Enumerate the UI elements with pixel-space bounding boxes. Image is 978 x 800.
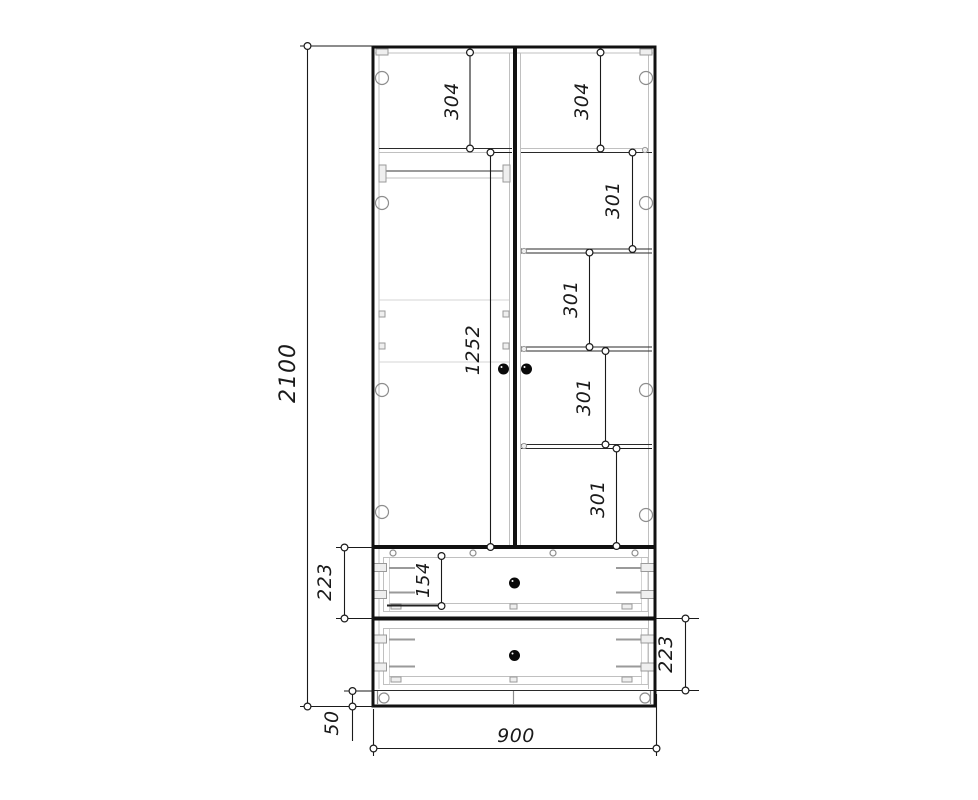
dim-label-301-1: 301 (602, 181, 624, 219)
cam-lock-icon (376, 72, 389, 85)
foot-icon (640, 693, 650, 703)
cam-lock-icon (376, 506, 389, 519)
cam-lock-icon (632, 550, 638, 556)
dim-label-1252: 1252 (462, 325, 484, 375)
cam-lock-icon (470, 550, 476, 556)
cam-lock-icon (640, 72, 653, 85)
left-door-handle (498, 364, 509, 375)
bottom-fitting (391, 677, 401, 682)
dim-total-height: 2100 (276, 43, 373, 710)
dim-label-301-3: 301 (573, 378, 595, 416)
dim-right-shelf-1: 301 (602, 149, 636, 252)
shelf-pin (503, 311, 509, 317)
handle-highlight (501, 366, 503, 368)
foot-icon (379, 693, 389, 703)
bottom-fitting (622, 677, 632, 682)
slide-bracket (374, 635, 387, 643)
knob-highlight (512, 653, 514, 655)
drawing-canvas: 2100 304 304 1252 301 (0, 0, 978, 800)
rod-end-bracket (379, 165, 386, 182)
dim-plinth: 50 (321, 688, 374, 741)
dim-label-223-upper: 223 (314, 563, 336, 601)
cam-lock-icon (640, 384, 653, 397)
dim-drawer-box: 154 (387, 553, 445, 610)
rod-end-bracket (503, 165, 510, 182)
knob-highlight (512, 580, 514, 582)
dim-right-top-section: 304 (571, 49, 604, 152)
cam-lock-icon (376, 384, 389, 397)
wardrobe-technical-drawing: 2100 304 304 1252 301 (0, 0, 978, 800)
dim-label-2100: 2100 (276, 343, 301, 403)
handle-highlight (524, 366, 526, 368)
dim-right-shelf-3: 301 (573, 348, 609, 448)
dim-label-900: 900 (497, 725, 535, 747)
dim-label-304-right: 304 (571, 82, 593, 120)
cam-lock-icon (640, 509, 653, 522)
bottom-fitting (510, 677, 517, 682)
dim-label-304-left: 304 (441, 82, 463, 120)
dim-right-shelf-4: 301 (587, 445, 652, 549)
dim-right-shelf-2: 301 (560, 249, 593, 350)
dim-lower-drawer: 223 (655, 615, 699, 694)
shelf-pin (379, 343, 385, 349)
cam-lock-icon (376, 197, 389, 210)
shelf-clip (521, 443, 526, 448)
dimensions: 2100 304 304 1252 301 (276, 43, 699, 756)
dim-upper-drawer: 223 (314, 544, 373, 622)
dim-label-301-2: 301 (560, 280, 582, 318)
slide-bracket (374, 663, 387, 671)
right-door-handle (521, 364, 532, 375)
dim-label-50: 50 (321, 710, 343, 735)
shelf-pin (503, 343, 509, 349)
shelf-clip (642, 147, 647, 152)
bottom-fitting (510, 604, 517, 609)
cam-lock-icon (550, 550, 556, 556)
cam-lock-icon (390, 550, 396, 556)
corner-fitting (376, 49, 388, 55)
dim-label-223-lower: 223 (655, 635, 677, 673)
lower-drawer (374, 629, 655, 685)
slide-bracket (374, 564, 387, 572)
shelf-pin (379, 311, 385, 317)
dim-label-301-4: 301 (587, 480, 609, 518)
dim-left-top-section: 304 (441, 49, 473, 152)
shelf-clip (521, 346, 526, 351)
slide-bracket (641, 591, 654, 599)
dim-label-154: 154 (413, 562, 434, 598)
corner-fitting (640, 49, 652, 55)
bottom-fitting (622, 604, 632, 609)
dim-door-height: 1252 (462, 149, 512, 550)
shelf-clip (521, 248, 526, 253)
dim-total-width: 900 (370, 694, 660, 756)
upper-drawer-knob (509, 578, 520, 589)
slide-bracket (374, 591, 387, 599)
lower-drawer-knob (509, 650, 520, 661)
slide-bracket (641, 663, 654, 671)
slide-bracket (641, 564, 654, 572)
slide-bracket (641, 635, 654, 643)
plinth (378, 691, 651, 704)
cam-lock-icon (640, 197, 653, 210)
